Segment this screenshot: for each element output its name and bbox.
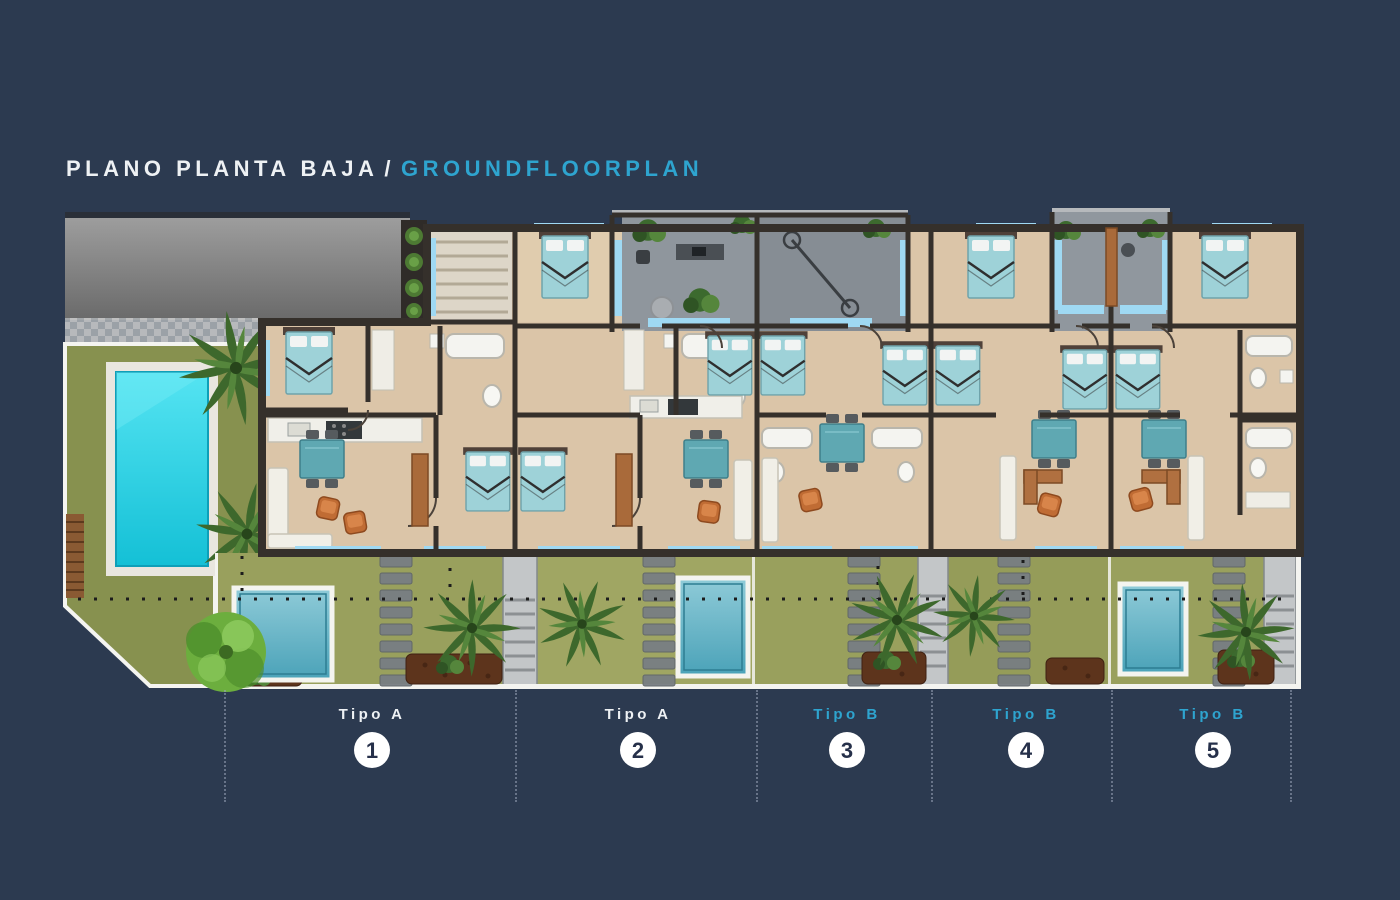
unit-type-label: Tipo B (946, 706, 1106, 723)
unit-number-badge: 1 (354, 732, 390, 768)
unit-number-badge: 3 (829, 732, 865, 768)
double-bed (1199, 231, 1251, 298)
double-bed (880, 341, 929, 405)
unit-type-label: Tipo B (767, 706, 927, 723)
title-secondary: GROUNDFLOORPLAN (401, 156, 703, 181)
armchair (316, 496, 341, 521)
double-bed (705, 331, 754, 395)
title-primary: PLANO PLANTA BAJA (66, 156, 378, 181)
armchair (1037, 492, 1063, 518)
label-divider (931, 690, 933, 802)
double-bed (933, 341, 982, 405)
label-divider (224, 690, 226, 802)
label-divider (1290, 690, 1292, 802)
double-bed (965, 231, 1017, 298)
double-bed (758, 331, 807, 395)
unit-label-1: Tipo A 1 (292, 706, 452, 768)
double-bed (283, 327, 335, 394)
unit-type-label: Tipo A (292, 706, 452, 723)
double-bed (518, 447, 567, 511)
unit-label-5: Tipo B 5 (1133, 706, 1293, 768)
label-divider (756, 690, 758, 802)
unit-label-2: Tipo A 2 (558, 706, 718, 768)
armchair (343, 510, 367, 534)
unit-number-badge: 2 (620, 732, 656, 768)
label-divider (515, 690, 517, 802)
double-bed (539, 231, 591, 298)
title-separator: / (378, 156, 401, 181)
unit-type-label: Tipo B (1133, 706, 1293, 723)
privacy-fence (1106, 228, 1117, 306)
shade-tree (186, 612, 266, 692)
page-title: PLANO PLANTA BAJA/GROUNDFLOORPLAN (66, 156, 703, 182)
armchair (697, 500, 721, 524)
double-bed (463, 447, 512, 511)
unit-label-4: Tipo B 4 (946, 706, 1106, 768)
unit-number-badge: 5 (1195, 732, 1231, 768)
unit-number-badge: 4 (1008, 732, 1044, 768)
presentation-slide: PLANO PLANTA BAJA/GROUNDFLOORPLAN Tipo A… (0, 0, 1400, 900)
armchair (1128, 487, 1154, 513)
plunge-pool-unit-2 (678, 578, 748, 676)
unit-label-3: Tipo B 3 (767, 706, 927, 768)
building (262, 208, 1300, 555)
armchair (798, 488, 823, 513)
label-divider (1111, 690, 1113, 802)
entry-stairs (430, 230, 512, 320)
slat-fence (66, 514, 84, 598)
double-bed (1113, 345, 1162, 409)
double-bed (1060, 345, 1109, 409)
unit-type-label: Tipo A (558, 706, 718, 723)
garden-walkway (503, 553, 537, 686)
